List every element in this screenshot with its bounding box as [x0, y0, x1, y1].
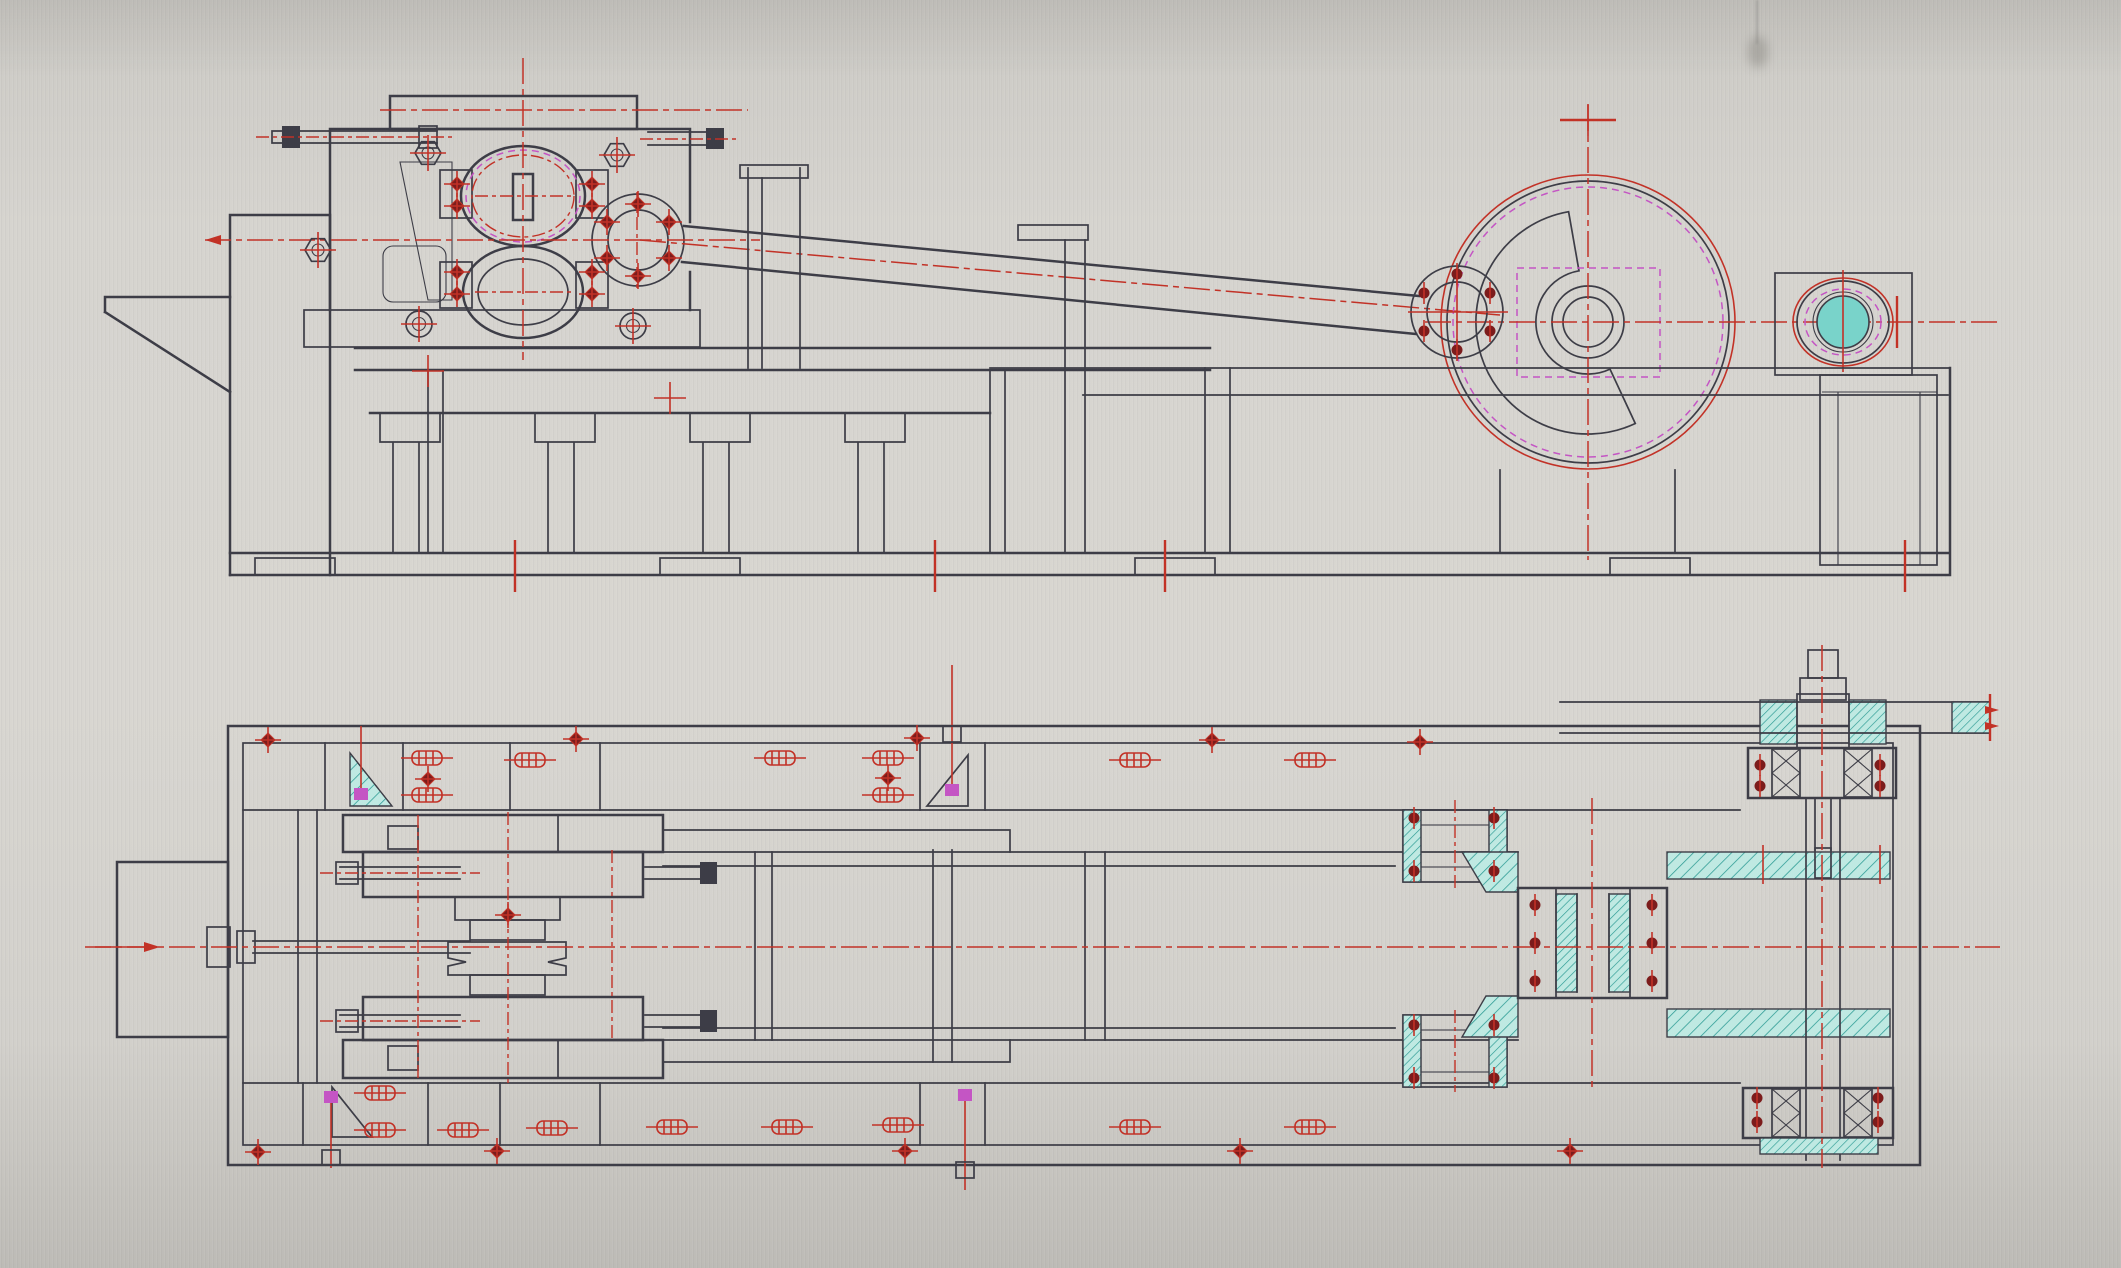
- marker-stud: [872, 1118, 924, 1132]
- marker-stud: [437, 1123, 489, 1137]
- marker-dot: [1530, 894, 1541, 916]
- marker-diam: [444, 281, 470, 307]
- marker-diam: [875, 765, 901, 791]
- marker-diam: [594, 245, 620, 271]
- marker-circlebolt: [615, 308, 651, 344]
- counterweight-web: [1476, 212, 1635, 434]
- marker-stud: [401, 751, 453, 765]
- marker-circlebolt: [401, 306, 437, 342]
- marker-stud: [354, 1086, 406, 1100]
- photographed-cad-drawing: [0, 0, 2121, 1268]
- marker-msq: [958, 1089, 972, 1101]
- marker-stud: [526, 1121, 578, 1135]
- elevation-view: [105, 58, 2000, 592]
- marker-hex: [410, 135, 446, 171]
- marker-dot: [1875, 775, 1886, 797]
- marker-xbear: [1772, 1089, 1800, 1137]
- marker-stud: [761, 1120, 813, 1134]
- drawing-canvas: [0, 0, 2121, 1268]
- marker-diam: [1407, 729, 1433, 755]
- crank-big-end: [1408, 266, 1508, 358]
- bracket-bolts: [444, 171, 605, 307]
- connecting-rod: [640, 226, 1500, 334]
- base-centerline-ticks: [515, 540, 1905, 592]
- marker-stud: [504, 753, 556, 767]
- marker-msq: [324, 1091, 338, 1103]
- marker-stud: [401, 788, 453, 802]
- marker-xbear: [1844, 749, 1872, 797]
- marker-diam: [1199, 727, 1225, 753]
- marker-dot: [1647, 970, 1658, 992]
- marker-cross: [654, 382, 686, 414]
- eccentric-straps: [1403, 800, 1507, 1092]
- right-stud-bolt: [640, 128, 737, 149]
- marker-diam: [656, 209, 682, 235]
- marker-stud: [1284, 1120, 1336, 1134]
- marker-diam: [1557, 1138, 1583, 1164]
- shaft-pedestal: [1775, 270, 1937, 565]
- marker-diam: [563, 726, 589, 752]
- marker-msq: [354, 788, 368, 800]
- marker-stud: [1109, 753, 1161, 767]
- marker-dot: [1875, 754, 1886, 776]
- marker-xbear: [1772, 749, 1800, 797]
- marker-xbear: [1844, 1089, 1872, 1137]
- marker-stud: [862, 751, 914, 765]
- marker-dot: [1752, 1087, 1763, 1109]
- marker-dot: [1530, 932, 1541, 954]
- marker-dot: [1530, 970, 1541, 992]
- plan-view: [85, 645, 2000, 1190]
- marker-stud: [1284, 753, 1336, 767]
- machine-bed: [355, 348, 1950, 553]
- marker-msq: [945, 784, 959, 796]
- frame-edge-bolts: [245, 725, 1583, 1165]
- centerlines-elevation: [205, 58, 1616, 360]
- marker-diam: [495, 902, 521, 928]
- marker-hex: [599, 137, 635, 173]
- marker-diam: [892, 1138, 918, 1164]
- marker-diam: [255, 727, 281, 753]
- marker-dot: [1755, 754, 1766, 776]
- tie-rods: [663, 830, 1518, 1062]
- dust-smudge: [1748, 36, 1768, 68]
- marker-dot: [1873, 1111, 1884, 1133]
- small-diamond-bolts: [415, 765, 901, 928]
- feed-chute: [105, 297, 230, 392]
- marker-stud: [646, 1120, 698, 1134]
- marker-dot: [1647, 894, 1658, 916]
- marker-diam: [1227, 1138, 1253, 1164]
- marker-dot: [1647, 932, 1658, 954]
- feed-box-plan: [95, 862, 470, 1037]
- marker-diam: [245, 1139, 271, 1165]
- magenta-markers: [324, 784, 972, 1103]
- marker-dot: [1752, 1111, 1763, 1133]
- marker-cross: [412, 355, 444, 387]
- marker-dot: [1873, 1087, 1884, 1109]
- crank-bearing-block: [1462, 798, 1890, 1090]
- marker-diam: [594, 209, 620, 235]
- marker-stud: [1109, 1120, 1161, 1134]
- marker-stud: [754, 751, 806, 765]
- marker-diam: [579, 193, 605, 219]
- marker-diam: [904, 725, 930, 751]
- marker-dot: [1755, 775, 1766, 797]
- marker-diam: [656, 245, 682, 271]
- marker-cross: [1572, 104, 1604, 136]
- marker-diam: [484, 1138, 510, 1164]
